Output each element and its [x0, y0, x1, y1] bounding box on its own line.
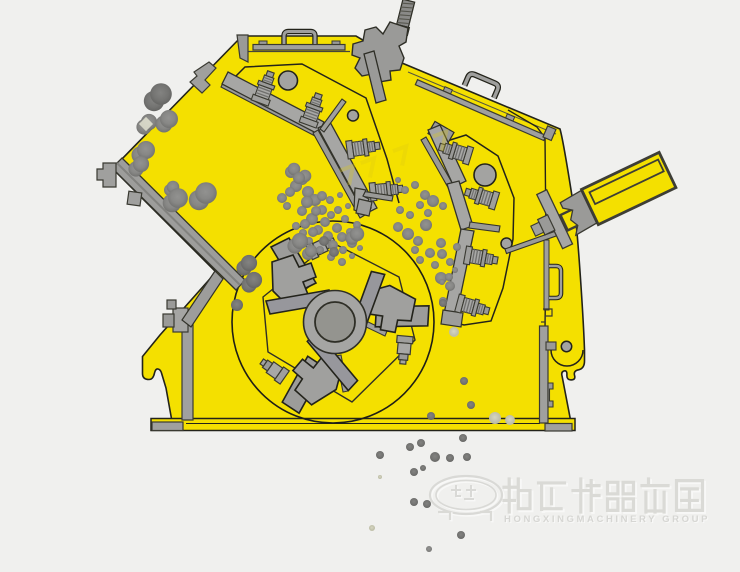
svg-text:HONGXINGMACHINERY GROUP: HONGXINGMACHINERY GROUP: [504, 514, 710, 525]
